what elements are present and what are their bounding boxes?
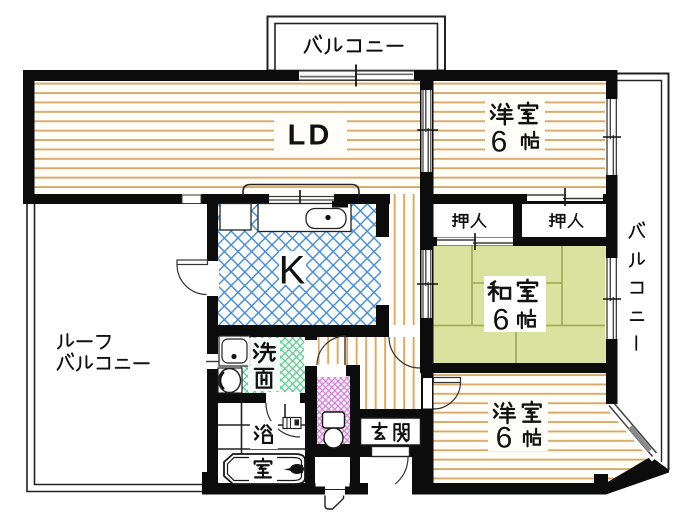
svg-text:6: 6 xyxy=(493,304,510,337)
svg-text:LD: LD xyxy=(288,120,333,152)
svg-text:6: 6 xyxy=(496,422,513,455)
svg-text:6: 6 xyxy=(491,126,508,159)
svg-text:K: K xyxy=(279,249,306,293)
